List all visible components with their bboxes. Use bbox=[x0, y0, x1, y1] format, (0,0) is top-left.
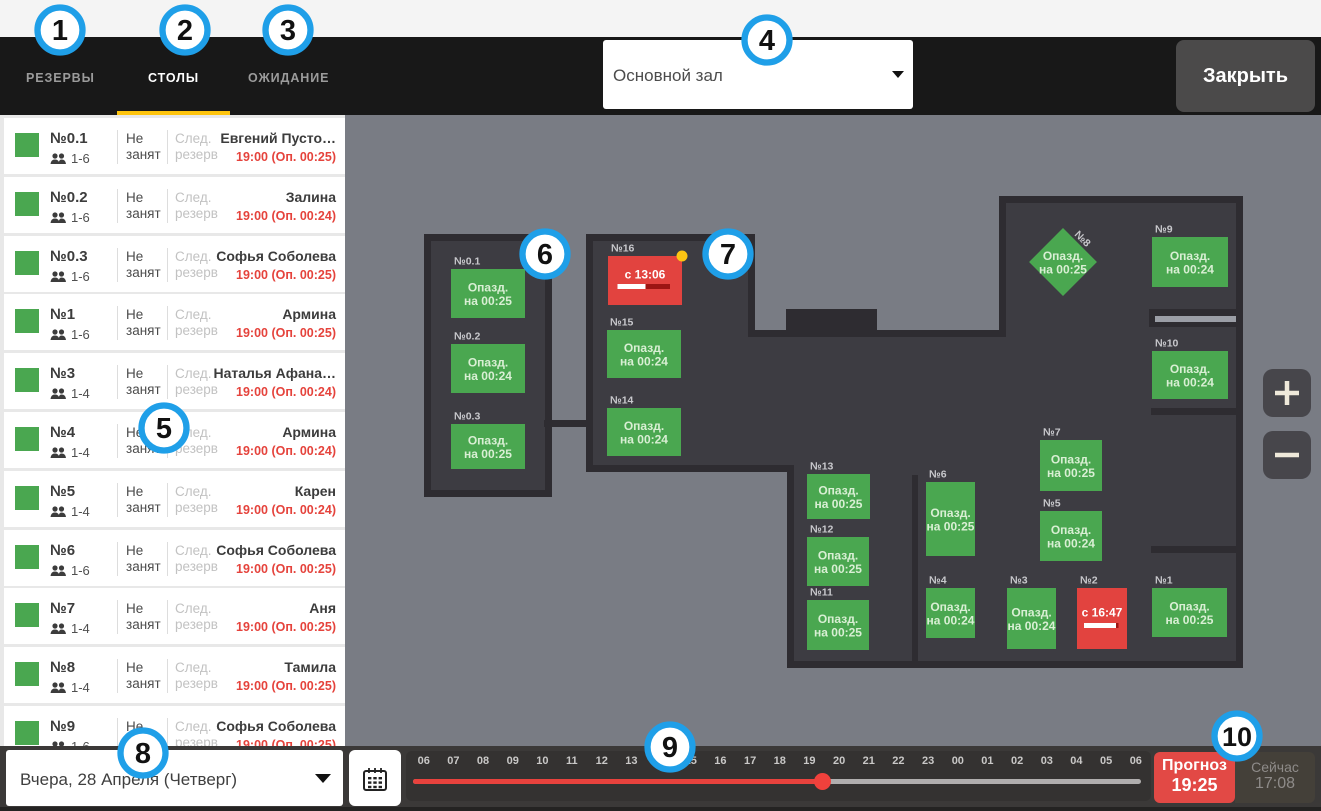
svg-text:3: 3 bbox=[280, 15, 296, 47]
svg-text:№13: №13 bbox=[810, 461, 834, 473]
svg-text:№1: №1 bbox=[1155, 575, 1173, 587]
svg-text:№0.1: №0.1 bbox=[454, 256, 480, 268]
svg-text:Опазд.: Опазд. bbox=[1043, 249, 1083, 263]
svg-text:№0.3: №0.3 bbox=[454, 411, 480, 423]
svg-text:Опазд.: Опазд. bbox=[818, 484, 858, 498]
svg-text:№9: №9 bbox=[1155, 224, 1173, 236]
svg-text:с 13:06: с 13:06 bbox=[625, 268, 666, 282]
svg-text:№6: №6 bbox=[929, 469, 947, 481]
svg-text:№4: №4 bbox=[929, 575, 947, 587]
svg-text:на 00:24: на 00:24 bbox=[1166, 263, 1214, 277]
svg-text:на 00:25: на 00:25 bbox=[464, 294, 512, 308]
svg-text:№14: №14 bbox=[610, 395, 634, 407]
svg-text:Опазд.: Опазд. bbox=[930, 600, 970, 614]
svg-text:на 00:24: на 00:24 bbox=[620, 433, 668, 447]
svg-text:Опазд.: Опазд. bbox=[1051, 523, 1091, 537]
svg-text:Опазд.: Опазд. bbox=[624, 341, 664, 355]
svg-text:на 00:25: на 00:25 bbox=[814, 562, 862, 576]
svg-text:на 00:24: на 00:24 bbox=[1166, 376, 1214, 390]
svg-text:Опазд.: Опазд. bbox=[1011, 606, 1051, 620]
svg-text:на 00:25: на 00:25 bbox=[464, 447, 512, 461]
svg-text:№15: №15 bbox=[610, 317, 634, 329]
svg-text:на 00:25: на 00:25 bbox=[1166, 613, 1214, 627]
svg-text:№10: №10 bbox=[1155, 338, 1179, 350]
svg-text:Опазд.: Опазд. bbox=[930, 506, 970, 520]
svg-text:1: 1 bbox=[52, 15, 68, 47]
svg-text:на 00:25: на 00:25 bbox=[1047, 466, 1095, 480]
svg-text:на 00:25: на 00:25 bbox=[815, 497, 863, 511]
svg-text:№2: №2 bbox=[1080, 575, 1098, 587]
svg-text:2: 2 bbox=[177, 15, 193, 47]
svg-text:№7: №7 bbox=[1043, 427, 1061, 439]
svg-text:на 00:25: на 00:25 bbox=[1039, 263, 1087, 277]
svg-text:на 00:24: на 00:24 bbox=[464, 369, 512, 383]
svg-text:№5: №5 bbox=[1043, 498, 1061, 510]
svg-text:Опазд.: Опазд. bbox=[1170, 249, 1210, 263]
svg-text:Опазд.: Опазд. bbox=[468, 281, 508, 295]
svg-text:Опазд.: Опазд. bbox=[624, 419, 664, 433]
svg-text:на 00:25: на 00:25 bbox=[927, 520, 975, 534]
svg-text:10: 10 bbox=[1222, 722, 1252, 752]
svg-text:7: 7 bbox=[720, 239, 736, 271]
svg-text:Опазд.: Опазд. bbox=[1169, 600, 1209, 614]
svg-text:6: 6 bbox=[537, 239, 553, 271]
svg-text:№11: №11 bbox=[810, 587, 833, 599]
svg-text:№16: №16 bbox=[611, 243, 635, 255]
svg-text:Опазд.: Опазд. bbox=[1051, 453, 1091, 467]
svg-text:Опазд.: Опазд. bbox=[468, 434, 508, 448]
svg-text:4: 4 bbox=[759, 25, 775, 57]
svg-text:№3: №3 bbox=[1010, 575, 1028, 587]
svg-text:5: 5 bbox=[156, 413, 172, 445]
svg-text:Опазд.: Опазд. bbox=[818, 549, 858, 563]
svg-text:на 00:25: на 00:25 bbox=[814, 626, 862, 640]
svg-text:Опазд.: Опазд. bbox=[1170, 362, 1210, 376]
svg-text:8: 8 bbox=[135, 738, 151, 770]
svg-text:№0.2: №0.2 bbox=[454, 331, 480, 343]
svg-text:на 00:24: на 00:24 bbox=[927, 614, 975, 628]
svg-text:на 00:24: на 00:24 bbox=[1047, 537, 1095, 551]
svg-text:Опазд.: Опазд. bbox=[468, 356, 508, 370]
svg-text:№12: №12 bbox=[810, 524, 834, 536]
svg-text:9: 9 bbox=[662, 732, 678, 764]
svg-text:Опазд.: Опазд. bbox=[818, 612, 858, 626]
svg-text:с 16:47: с 16:47 bbox=[1082, 606, 1123, 620]
svg-text:на 00:24: на 00:24 bbox=[620, 355, 668, 369]
svg-text:на 00:24: на 00:24 bbox=[1008, 619, 1056, 633]
